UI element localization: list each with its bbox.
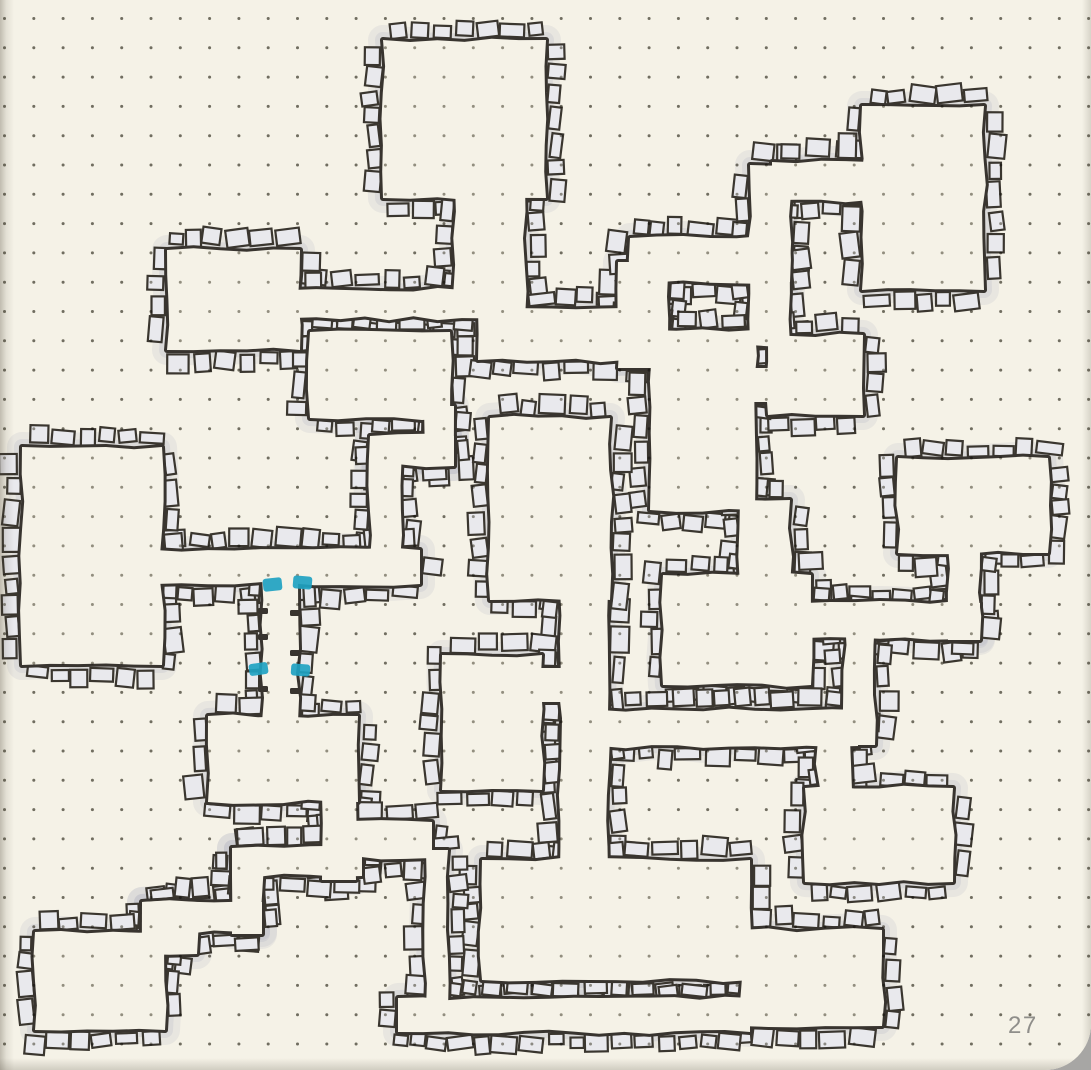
teal-door-upper-left <box>262 577 282 592</box>
page-number: 27 <box>1008 1012 1038 1040</box>
teal-door-upper-right <box>292 575 312 590</box>
notebook-page: 27 <box>0 0 1091 1070</box>
dungeon-map <box>0 0 1091 1070</box>
teal-door-lower-right <box>291 663 311 676</box>
